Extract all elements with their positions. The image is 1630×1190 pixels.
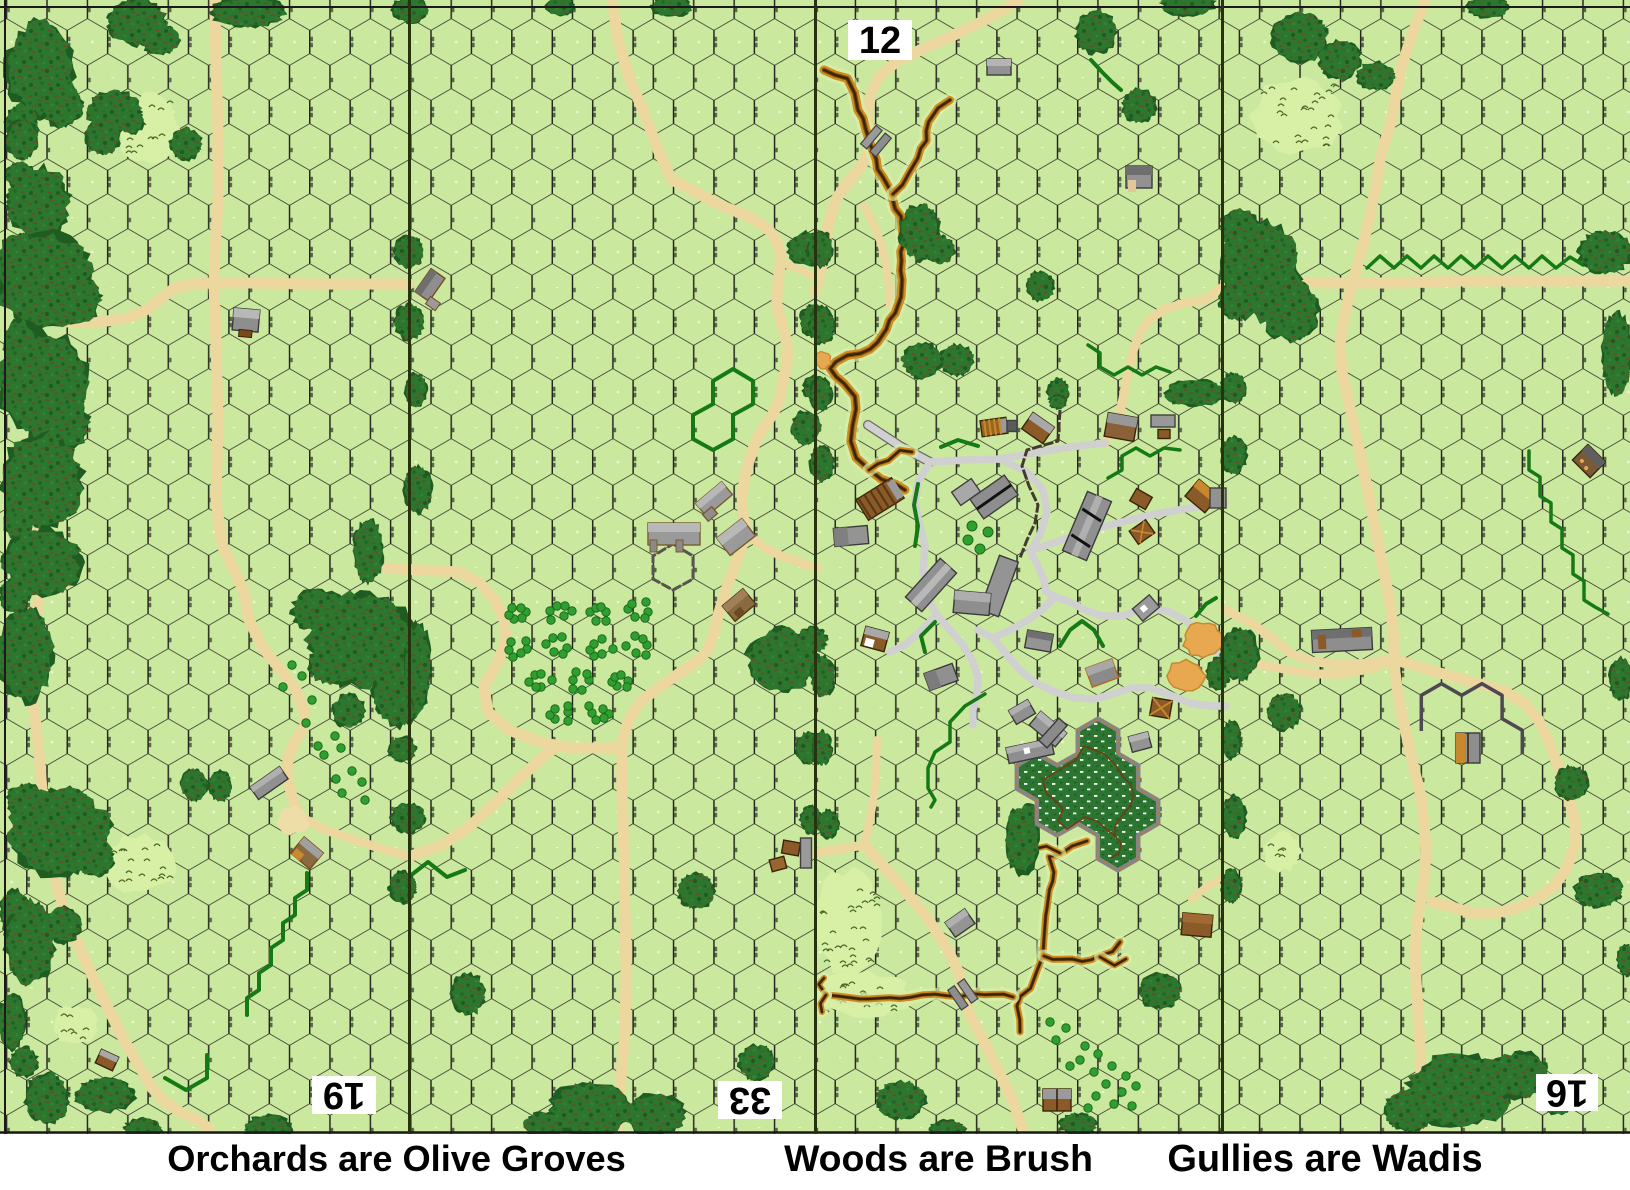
- svg-text:Orchards are Olive Groves: Orchards are Olive Groves: [167, 1138, 626, 1179]
- svg-text:12: 12: [859, 20, 901, 62]
- svg-text:19: 19: [323, 1074, 365, 1116]
- svg-text:Woods are Brush: Woods are Brush: [784, 1137, 1093, 1179]
- svg-text:16: 16: [1546, 1072, 1588, 1114]
- svg-text:Gullies are Wadis: Gullies are Wadis: [1167, 1138, 1482, 1180]
- svg-text:33: 33: [729, 1079, 771, 1121]
